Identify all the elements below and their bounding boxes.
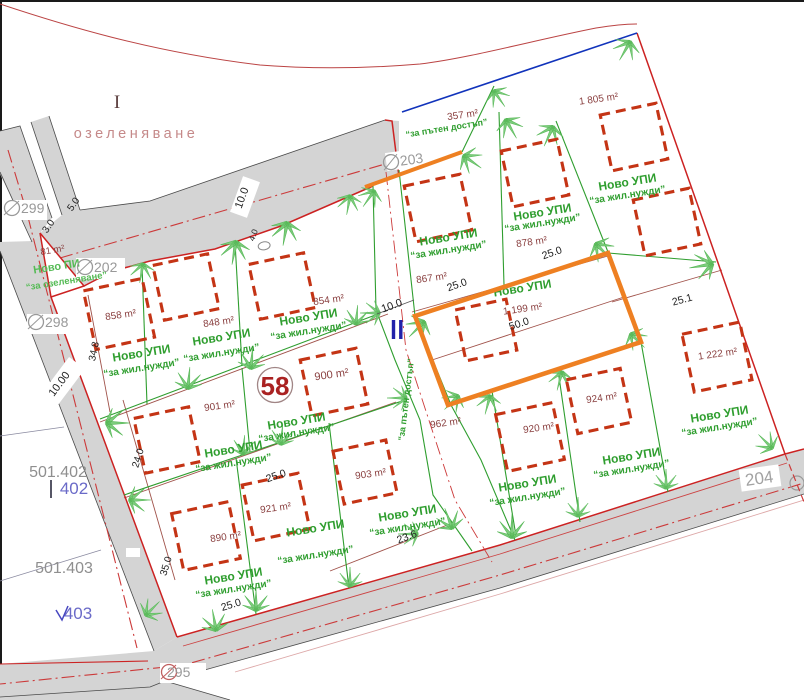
- svg-text:204: 204: [744, 467, 775, 490]
- svg-text:298: 298: [45, 314, 69, 330]
- svg-text:озеленяване: озеленяване: [74, 126, 199, 142]
- svg-text:58: 58: [261, 371, 290, 401]
- svg-text:I: I: [114, 92, 120, 113]
- svg-text:501.403: 501.403: [35, 560, 93, 577]
- svg-text:295: 295: [167, 664, 191, 680]
- svg-text:202: 202: [94, 259, 118, 275]
- svg-text:402: 402: [60, 479, 88, 498]
- svg-text:299: 299: [21, 200, 45, 216]
